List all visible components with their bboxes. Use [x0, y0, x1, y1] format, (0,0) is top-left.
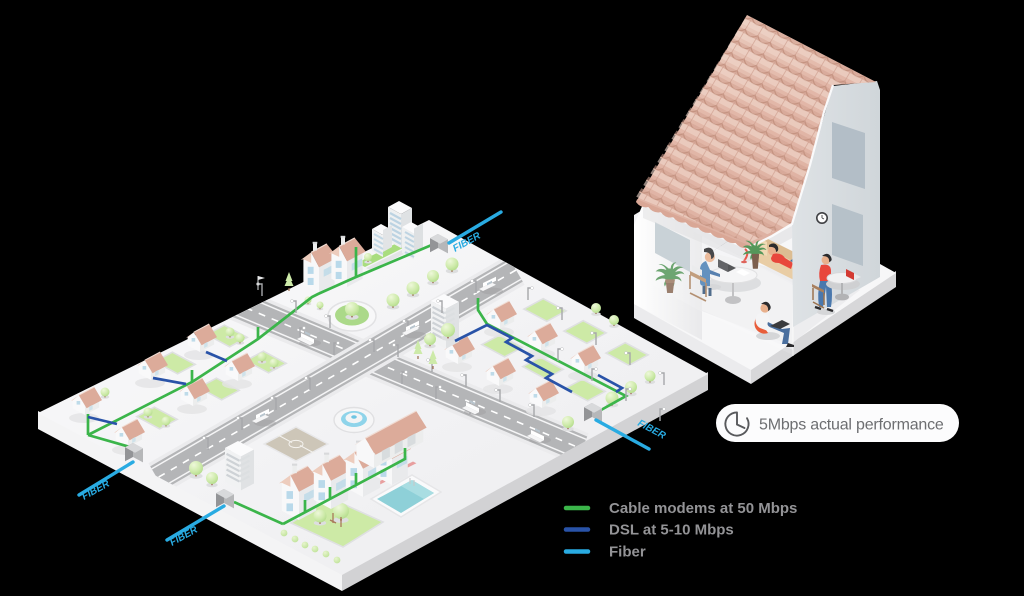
- svg-text:Cable modems at 50 Mbps: Cable modems at 50 Mbps: [609, 500, 797, 517]
- svg-text:5Mbps actual performance: 5Mbps actual performance: [759, 417, 944, 434]
- svg-text:Fiber: Fiber: [609, 544, 646, 561]
- svg-text:DSL at 5-10 Mbps: DSL at 5-10 Mbps: [609, 522, 734, 539]
